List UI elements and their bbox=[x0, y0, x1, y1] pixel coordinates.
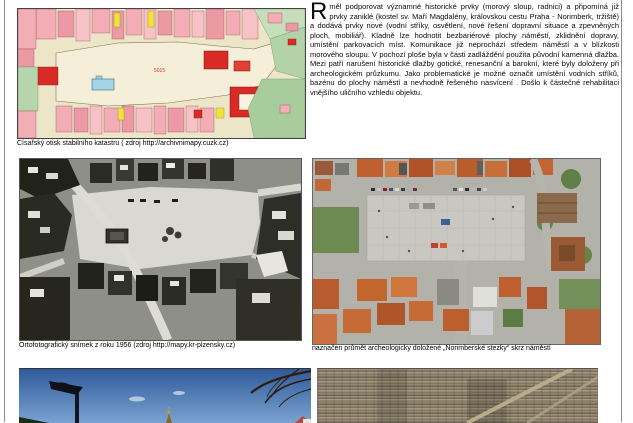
caption-cadastral-map: Císařský otisk stabilního katastru ( zdr… bbox=[17, 140, 229, 148]
pavement-photo-figure bbox=[317, 368, 598, 423]
aerial-plaza bbox=[367, 195, 525, 261]
cadastral-map-image: 5015 bbox=[18, 9, 305, 138]
aerial-current-image bbox=[313, 159, 600, 344]
orthophoto-1956-image bbox=[20, 159, 301, 340]
street-lamp-photo-image bbox=[19, 369, 311, 423]
street-lamp-photo-figure bbox=[19, 368, 311, 423]
bw-town-square bbox=[72, 187, 260, 269]
map-parcel-number: 5015 bbox=[154, 68, 165, 74]
article-paragraph: Rměl podporovat významné historické prvk… bbox=[310, 2, 619, 97]
aerial-current-figure bbox=[312, 158, 601, 345]
cadastral-map-figure: 5015 bbox=[17, 8, 306, 139]
article-body-text: měl podporovat významné historické prvky… bbox=[310, 2, 619, 97]
pavement-overlay bbox=[317, 369, 598, 423]
caption-orthophoto-1956: Ortofotografický snímek z roku 1956 (zdr… bbox=[19, 342, 235, 350]
page-border-left bbox=[4, 0, 5, 422]
bw-square-pond bbox=[106, 229, 128, 243]
drop-cap: R bbox=[310, 2, 329, 21]
orthophoto-1956-figure bbox=[19, 158, 302, 341]
caption-aerial-current: naznačen průmět archeologicky doložené „… bbox=[312, 345, 551, 353]
page-border-right bbox=[621, 0, 622, 422]
